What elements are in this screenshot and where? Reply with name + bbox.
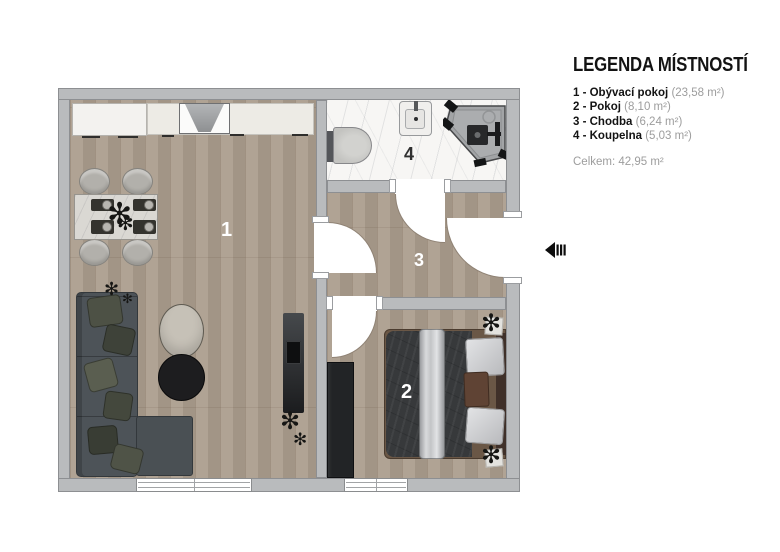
dining-chair xyxy=(122,168,153,195)
wall-bathroom-hallway xyxy=(327,180,395,193)
bed-runner-blanket xyxy=(419,329,445,459)
window-bedroom xyxy=(344,478,408,492)
wall-top xyxy=(58,88,520,100)
legend-item-area: (6,24 m²) xyxy=(636,116,683,128)
door-jamb xyxy=(326,296,333,310)
dining-chair xyxy=(79,239,110,266)
counter-shadow xyxy=(82,136,100,138)
wall-bottom xyxy=(58,478,520,492)
legend-item-name: 4 - Koupelna xyxy=(573,130,642,142)
plant-icon: ✻ xyxy=(481,312,501,336)
door-jamb xyxy=(312,272,329,279)
legend-item-name: 2 - Pokoj xyxy=(573,101,621,113)
window-divider xyxy=(376,479,377,491)
kitchen-counter-right xyxy=(147,103,314,135)
legend-item-name: 3 - Chodba xyxy=(573,116,632,128)
sofa-chaise xyxy=(136,416,193,476)
door-jamb xyxy=(376,296,383,310)
door-jamb xyxy=(312,216,329,223)
coffee-table-light xyxy=(159,304,204,358)
sofa-pillow xyxy=(101,323,136,357)
plant-icon: ✻ xyxy=(481,444,501,468)
door-jamb xyxy=(444,179,451,193)
wall-bathroom-hallway xyxy=(445,180,506,193)
legend-title: LEGENDA MÍSTNOSTÍ xyxy=(573,54,741,77)
coffee-table-dark xyxy=(158,354,205,401)
room-label-hallway: 3 xyxy=(414,251,424,269)
legend-item-hallway: 3 - Chodba (6,24 m²) xyxy=(573,115,773,129)
door-jamb xyxy=(389,179,396,193)
wardrobe xyxy=(327,362,354,478)
dining-chair xyxy=(79,168,110,195)
place-setting xyxy=(133,220,156,234)
counter-shadow xyxy=(162,135,174,137)
door-jamb xyxy=(503,277,522,284)
sink-faucet xyxy=(414,101,418,111)
entrance-arrow-icon xyxy=(537,239,567,261)
legend-item-area: (8,10 m²) xyxy=(624,101,671,113)
plant-icon: ✻ xyxy=(117,214,134,234)
door-opening-bathroom xyxy=(395,179,445,194)
wall-right xyxy=(506,99,520,479)
room-legend: LEGENDA MÍSTNOSTÍ 1 - Obývací pokoj (23,… xyxy=(573,54,773,168)
counter-shadow xyxy=(230,134,244,136)
toilet xyxy=(333,127,372,164)
room-label-living: 1 xyxy=(221,220,232,240)
window-divider xyxy=(194,479,195,491)
bed-pillow xyxy=(465,407,505,446)
room-label-bedroom: 2 xyxy=(401,382,412,402)
dining-chair xyxy=(122,239,153,266)
door-jamb xyxy=(503,211,522,218)
wall-living-divider xyxy=(316,100,327,478)
window-living-room xyxy=(136,478,252,492)
accent-pillow xyxy=(463,372,489,408)
legend-item-bedroom: 2 - Pokoj (8,10 m²) xyxy=(573,100,773,114)
legend-item-area: (5,03 m²) xyxy=(645,130,692,142)
door-opening-entrance xyxy=(505,217,521,278)
legend-total: Celkem: 42,95 m² xyxy=(573,156,773,168)
kitchen-counter-left xyxy=(72,103,147,136)
plant-icon: ✻ xyxy=(293,431,307,448)
plant-icon: ✻ xyxy=(122,292,133,305)
place-setting xyxy=(133,199,156,211)
room-label-bathroom: 4 xyxy=(404,145,414,163)
counter-shadow xyxy=(118,136,138,138)
door-opening-bedroom xyxy=(332,296,377,311)
corner-shower xyxy=(443,100,507,168)
legend-item-name: 1 - Obývací pokoj xyxy=(573,87,668,99)
tv xyxy=(286,341,301,364)
wall-left xyxy=(58,99,70,479)
sofa-pillow xyxy=(102,390,134,422)
sink-drain xyxy=(414,117,418,121)
wall-hallway-bedroom xyxy=(377,297,506,310)
legend-item-bathroom: 4 - Koupelna (5,03 m²) xyxy=(573,129,773,143)
counter-shadow xyxy=(292,134,308,136)
plant-icon: ✻ xyxy=(104,280,119,298)
legend-item-area: (23,58 m²) xyxy=(671,87,724,99)
door-opening-living xyxy=(314,222,328,273)
legend-item-living: 1 - Obývací pokoj (23,58 m²) xyxy=(573,86,773,100)
floor-plan-page: ✻ ✻ ✻ ✻ ✻ ✻ ✻ xyxy=(0,0,780,552)
legend-items: 1 - Obývací pokoj (23,58 m²) 2 - Pokoj (… xyxy=(573,86,773,143)
